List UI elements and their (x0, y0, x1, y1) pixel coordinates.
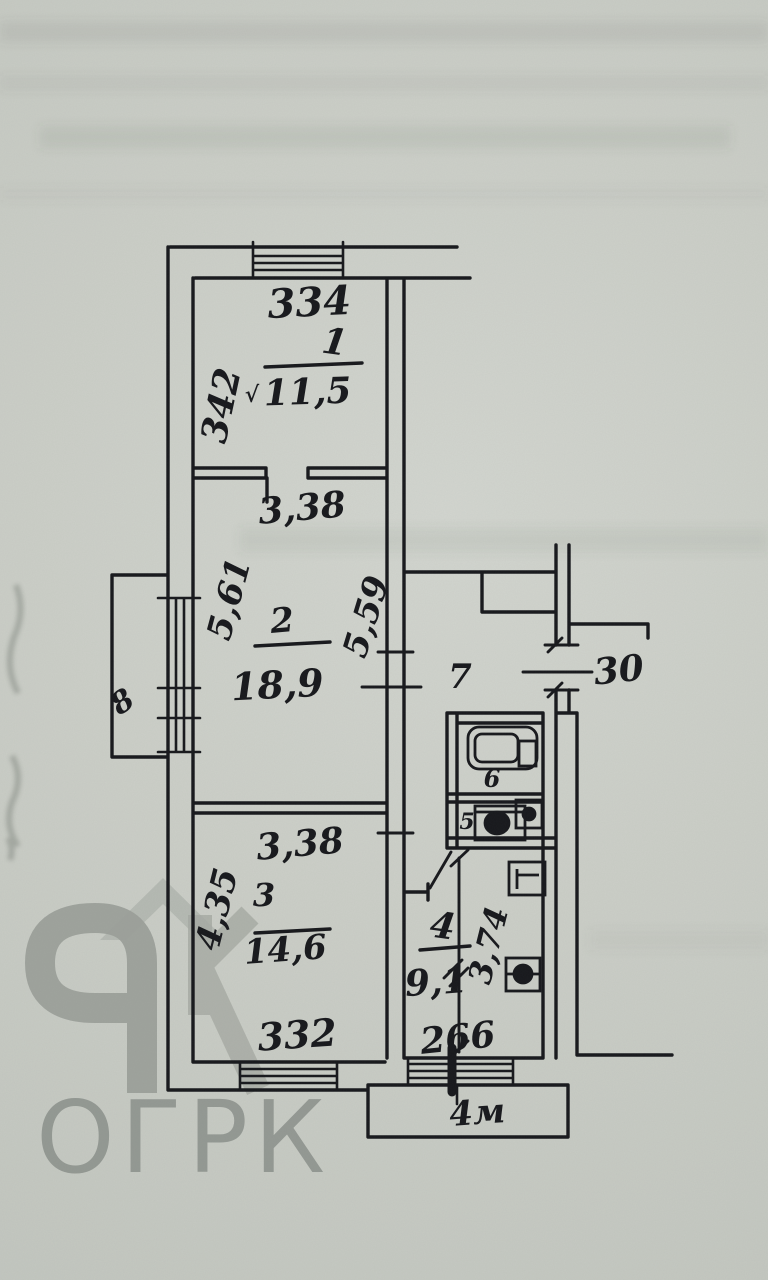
scanned-floor-plan-page: ОГРК 334 1 √ 11,5 342 3,38 5,61 (0, 0, 768, 1280)
floor-plan: ОГРК 334 1 √ 11,5 342 3,38 5,61 (0, 0, 768, 1280)
paper-grain-overlay (0, 0, 768, 1280)
